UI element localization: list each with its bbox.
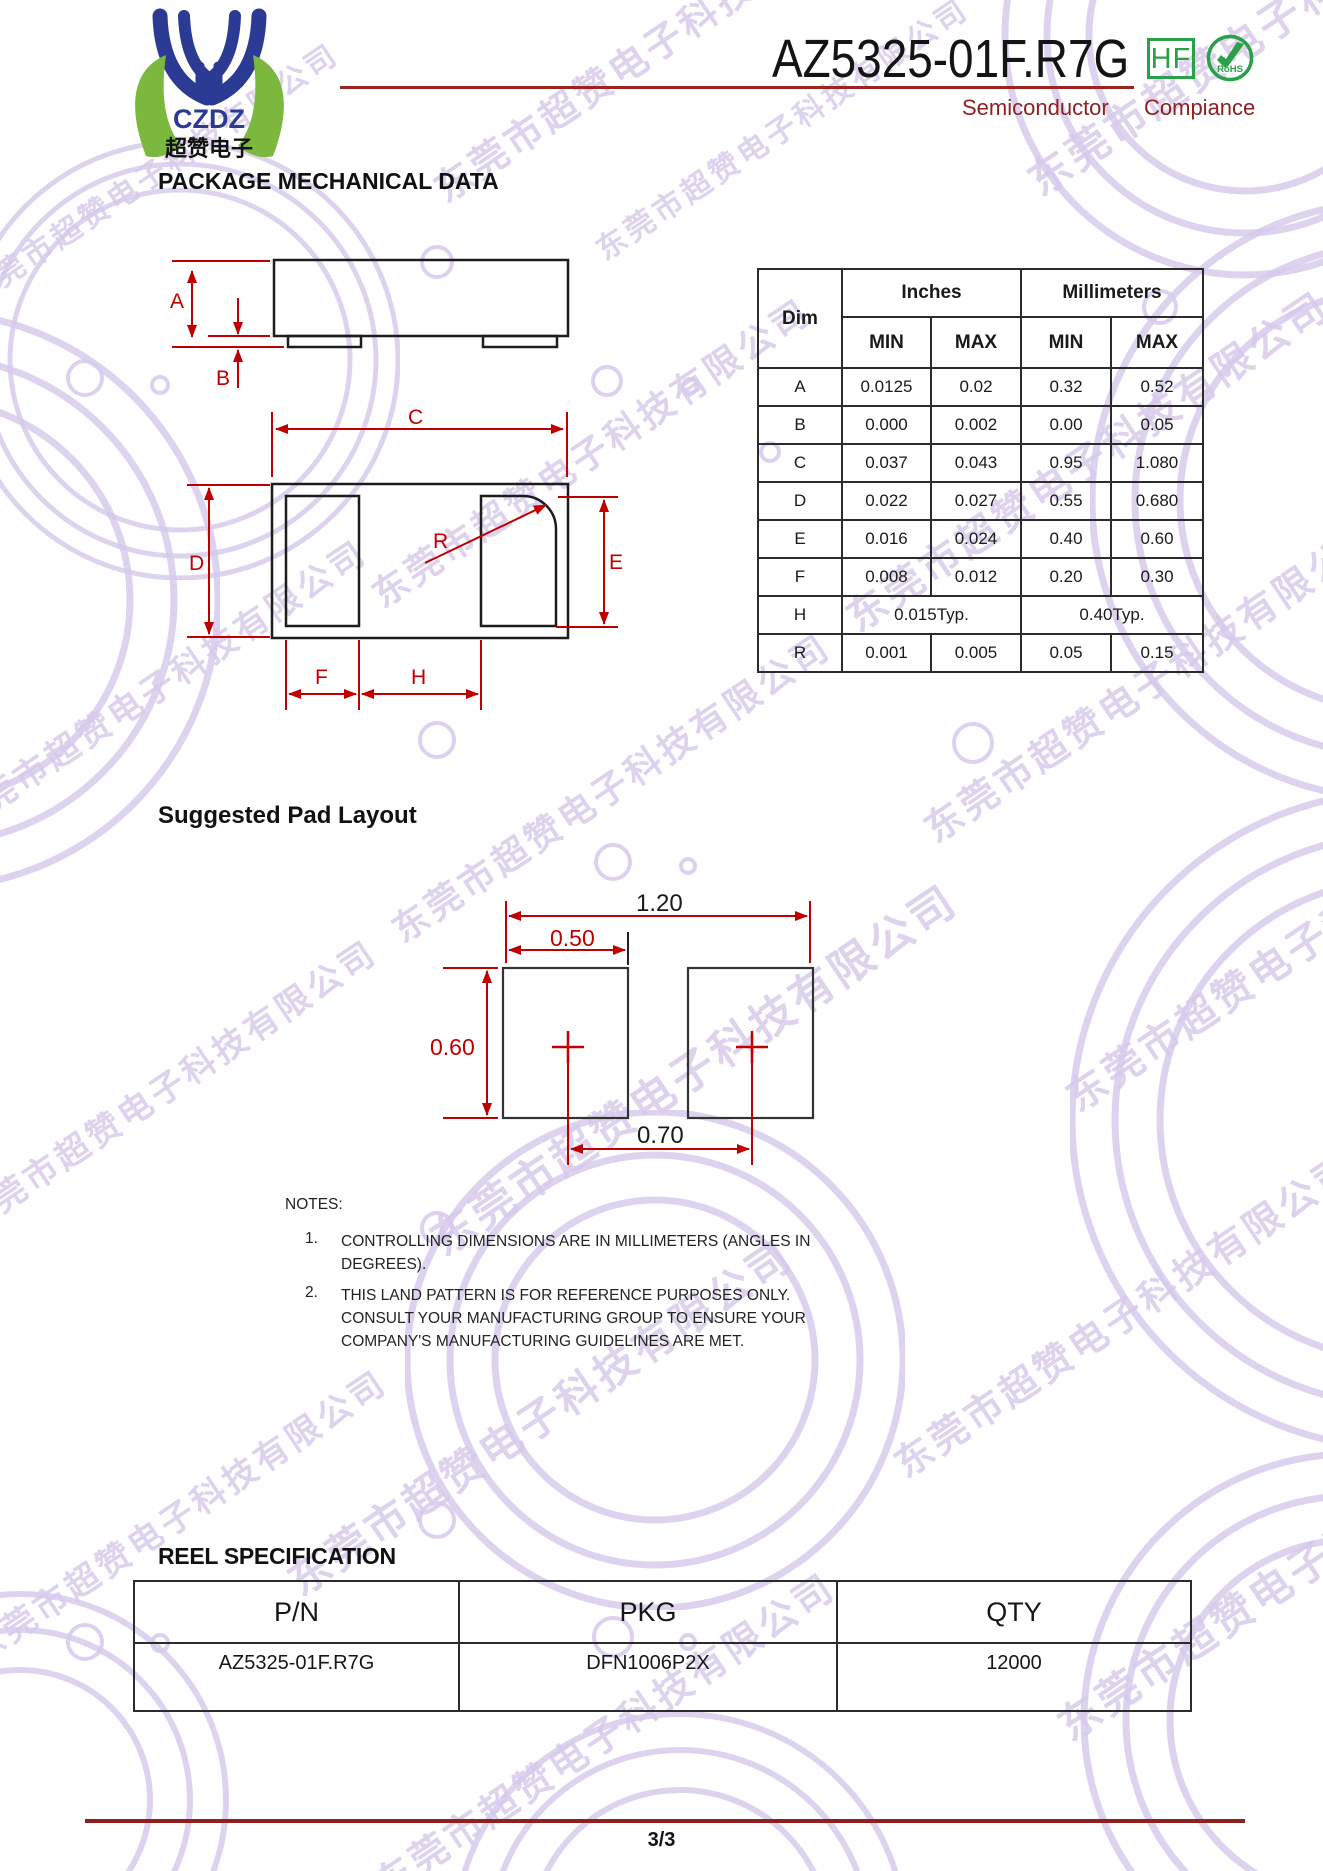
col-header-millimeters: Millimeters bbox=[1021, 269, 1203, 317]
notes-block: NOTES: 1. CONTROLLING DIMENSIONS ARE IN … bbox=[285, 1196, 885, 1361]
header-rule bbox=[340, 86, 1134, 89]
dim-label-r: R bbox=[433, 530, 448, 553]
footer-rule bbox=[85, 1819, 1245, 1823]
watermark-circle bbox=[66, 359, 104, 397]
pad-rects bbox=[503, 932, 813, 1118]
reel-header-pkg: PKG bbox=[459, 1581, 837, 1643]
pad-dimension-lines bbox=[443, 901, 810, 1165]
package-bottom-view bbox=[272, 484, 568, 638]
col-header-min: MIN bbox=[842, 317, 931, 368]
rohs-label: RoHS bbox=[1217, 64, 1243, 75]
watermark-rings bbox=[1070, 790, 1323, 1450]
watermark-circle bbox=[418, 1501, 456, 1539]
company-logo: CZDZ 超赞电子 bbox=[122, 8, 297, 168]
dim-label-c: C bbox=[408, 406, 423, 429]
table-row: A0.01250.020.320.52 bbox=[758, 368, 1203, 406]
watermark-circle bbox=[679, 857, 697, 875]
reel-header-pn: P/N bbox=[134, 1581, 459, 1643]
package-drawing: A B C D E F H R bbox=[150, 195, 630, 725]
reel-value-pkg: DFN1006P2X bbox=[459, 1643, 837, 1711]
pad-layout-drawing: 1.20 0.50 0.60 0.70 bbox=[400, 880, 830, 1180]
datasheet-page: 东莞市超赞电子科技有限公司 东莞市超赞电子科技有限公司 东莞市超赞电子科技有限公… bbox=[0, 0, 1323, 1871]
table-row: D0.0220.0270.550.680 bbox=[758, 482, 1203, 520]
reel-value-pn: AZ5325-01F.R7G bbox=[134, 1643, 459, 1711]
note-number: 2. bbox=[305, 1284, 327, 1353]
note-text: THIS LAND PATTERN IS FOR REFERENCE PURPO… bbox=[341, 1284, 806, 1353]
col-header-min: MIN bbox=[1021, 317, 1111, 368]
section-title-mechanical: PACKAGE MECHANICAL DATA bbox=[158, 168, 499, 195]
col-header-max: MAX bbox=[1111, 317, 1203, 368]
table-row: AZ5325-01F.R7G DFN1006P2X 12000 bbox=[134, 1643, 1191, 1711]
tagline-semiconductor: Semiconductor bbox=[962, 95, 1109, 121]
reel-specification-table: P/N PKG QTY AZ5325-01F.R7G DFN1006P2X 12… bbox=[133, 1580, 1192, 1712]
watermark-circle bbox=[66, 1623, 104, 1661]
table-header-row: P/N PKG QTY bbox=[134, 1581, 1191, 1643]
table-row: F0.0080.0120.200.30 bbox=[758, 558, 1203, 596]
logo-acronym: CZDZ bbox=[173, 104, 245, 134]
watermark-circle bbox=[681, 377, 699, 395]
package-side-view bbox=[274, 260, 568, 347]
table-row: B0.0000.0020.000.05 bbox=[758, 406, 1203, 444]
section-title-pad-layout: Suggested Pad Layout bbox=[158, 802, 417, 830]
watermark-circle bbox=[952, 722, 994, 764]
table-row: E0.0160.0240.400.60 bbox=[758, 520, 1203, 558]
col-header-inches: Inches bbox=[842, 269, 1021, 317]
dim-label-d: D bbox=[189, 552, 204, 575]
pad-dim-overall: 1.20 bbox=[636, 890, 683, 917]
note-item: 1. CONTROLLING DIMENSIONS ARE IN MILLIME… bbox=[285, 1230, 885, 1276]
reel-value-qty: 12000 bbox=[837, 1643, 1191, 1711]
dim-label-f: F bbox=[315, 666, 328, 689]
col-header-max: MAX bbox=[931, 317, 1021, 368]
dimension-lines bbox=[172, 261, 618, 710]
table-row: R0.0010.0050.050.15 bbox=[758, 634, 1203, 672]
table-row: C0.0370.0430.951.080 bbox=[758, 444, 1203, 482]
dimension-labels: A B C D E F H R bbox=[170, 290, 623, 689]
hf-badge: HF bbox=[1147, 38, 1195, 79]
section-title-reel: REEL SPECIFICATION bbox=[158, 1543, 396, 1570]
dim-label-b: B bbox=[216, 367, 230, 390]
rohs-badge: RoHS bbox=[1205, 33, 1255, 83]
notes-title: NOTES: bbox=[285, 1196, 885, 1214]
reel-header-qty: QTY bbox=[837, 1581, 1191, 1643]
pad-dim-height: 0.60 bbox=[430, 1034, 475, 1060]
tagline-compiance: Compiance bbox=[1144, 95, 1255, 121]
dim-label-e: E bbox=[609, 551, 623, 574]
page-number: 3/3 bbox=[0, 1829, 1323, 1852]
note-text: CONTROLLING DIMENSIONS ARE IN MILLIMETER… bbox=[341, 1230, 885, 1276]
note-number: 1. bbox=[305, 1230, 327, 1276]
pad-dim-pitch: 0.70 bbox=[637, 1122, 684, 1149]
dim-label-a: A bbox=[170, 290, 184, 313]
watermark-circle bbox=[594, 843, 632, 881]
note-item: 2. THIS LAND PATTERN IS FOR REFERENCE PU… bbox=[285, 1284, 885, 1353]
table-row-typ: H0.015Typ.0.40Typ. bbox=[758, 596, 1203, 634]
dimension-table: Dim Inches Millimeters MIN MAX MIN MAX A… bbox=[757, 268, 1204, 673]
col-header-dim: Dim bbox=[758, 269, 842, 368]
part-number-title: AZ5325-01F.R7G bbox=[772, 32, 1129, 86]
dim-label-h: H bbox=[411, 666, 426, 689]
pad-dim-width: 0.50 bbox=[550, 925, 595, 951]
logo-chinese-name: 超赞电子 bbox=[165, 136, 253, 161]
watermark-circle bbox=[418, 721, 456, 759]
